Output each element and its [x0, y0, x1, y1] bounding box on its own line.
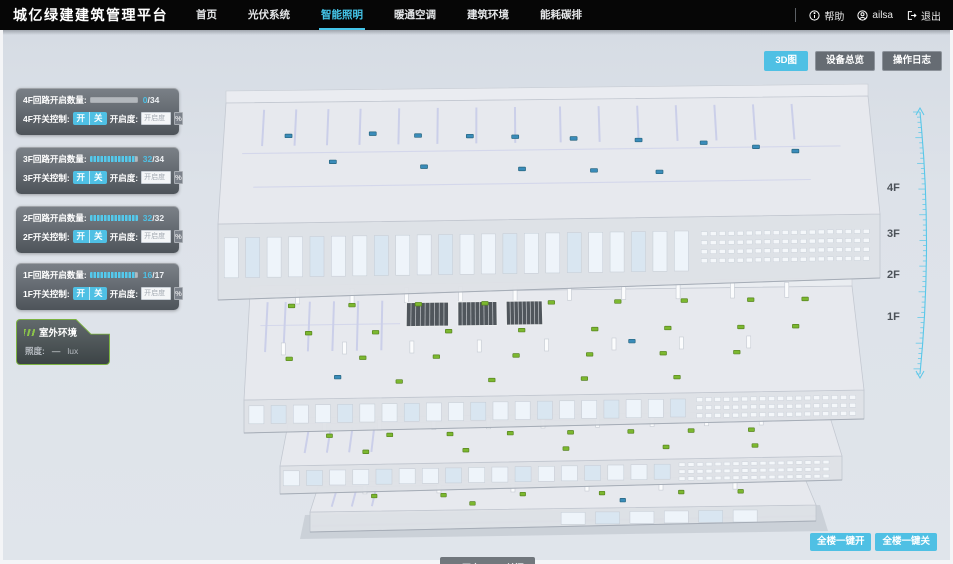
dim-label: 开启度:: [110, 231, 138, 243]
light-marker: [635, 138, 642, 142]
switch-on-button[interactable]: 开: [73, 171, 90, 184]
light-marker: [369, 132, 376, 136]
bulk-buttons: 全楼一键开全楼一键关: [810, 533, 937, 551]
light-marker: [489, 378, 496, 382]
light-marker: [285, 134, 292, 138]
light-marker: [334, 375, 341, 379]
dim-label: 开启度:: [110, 113, 138, 125]
logout-label: 退出: [921, 8, 941, 23]
light-marker: [599, 491, 605, 495]
circuit-count-label: 2F回路开启数量:: [23, 212, 87, 224]
circuit-count-label: 1F回路开启数量:: [23, 269, 87, 281]
light-marker: [548, 301, 555, 305]
light-marker: [656, 170, 663, 174]
light-marker: [513, 354, 520, 358]
light-marker: [371, 494, 377, 498]
light-marker: [792, 324, 799, 328]
light-marker: [570, 137, 577, 141]
light-marker: [563, 447, 569, 451]
logout-icon: [906, 10, 917, 21]
help-icon: [809, 10, 820, 21]
light-marker: [518, 328, 525, 332]
light-marker: [802, 297, 809, 301]
illuminance-unit: lux: [67, 346, 78, 356]
env-stripes-icon: [24, 329, 35, 336]
bulk-button-全楼一键开[interactable]: 全楼一键开: [810, 533, 872, 551]
light-marker: [620, 498, 626, 502]
app-title: 城亿绿建建筑管理平台: [13, 0, 168, 30]
percent-button[interactable]: %: [174, 112, 183, 125]
light-marker: [519, 167, 526, 171]
help-button[interactable]: 帮助: [809, 8, 844, 23]
light-marker: [387, 433, 393, 437]
env-title: 室外环境: [39, 325, 77, 339]
circuit-open-count: 32: [143, 213, 152, 223]
light-marker: [288, 304, 295, 308]
light-marker: [447, 432, 453, 436]
illuminance-value: —: [52, 346, 61, 356]
light-marker: [470, 502, 476, 506]
main-nav: 首页光伏系统智能照明暖通空调建筑环境能耗碳排: [194, 0, 584, 30]
switch-control-label: 2F开关控制:: [23, 231, 70, 243]
light-marker: [748, 428, 754, 432]
circuit-count-label: 4F回路开启数量:: [23, 94, 87, 106]
light-marker: [326, 434, 332, 438]
dim-label: 开启度:: [110, 172, 138, 184]
light-marker: [700, 141, 707, 145]
legend-on-label: 开启: [462, 561, 480, 564]
user-name: ailsa: [872, 10, 893, 21]
view-switch-buttons: 3D图设备总览操作日志: [764, 51, 942, 71]
circuit-open-count: 32: [143, 154, 152, 164]
bulk-button-全楼一键关[interactable]: 全楼一键关: [875, 533, 937, 551]
nav-item-建筑环境[interactable]: 建筑环境: [465, 0, 511, 30]
light-marker: [433, 355, 440, 359]
floor-label-4F[interactable]: 4F: [887, 182, 909, 194]
light-marker: [581, 377, 588, 381]
floor-label-2F[interactable]: 2F: [887, 269, 909, 281]
light-marker: [568, 430, 574, 434]
light-marker: [329, 160, 336, 164]
floor-3d-3F: [244, 278, 864, 433]
floor-label-1F[interactable]: 1F: [887, 311, 909, 323]
switch-off-button[interactable]: 关: [90, 287, 107, 300]
switch-control-label: 3F开关控制:: [23, 172, 70, 184]
light-marker: [615, 300, 622, 304]
view-button-设备总览[interactable]: 设备总览: [815, 51, 875, 71]
topbar: 城亿绿建建筑管理平台 首页光伏系统智能照明暖通空调建筑环境能耗碳排 帮助 ail…: [0, 0, 953, 30]
percent-button[interactable]: %: [174, 287, 183, 300]
light-marker: [752, 145, 759, 149]
app-root: 城亿绿建建筑管理平台 首页光伏系统智能照明暖通空调建筑环境能耗碳排 帮助 ail…: [0, 0, 953, 564]
floor-control-panel-1F: 1F回路开启数量: 16/17 1F开关控制: 开 关 开启度: %: [16, 263, 179, 310]
floor-zoom-ruler[interactable]: [913, 108, 927, 378]
circuit-progress-bar: [90, 215, 138, 221]
light-marker: [445, 329, 452, 333]
percent-button[interactable]: %: [174, 171, 183, 184]
light-marker: [629, 339, 636, 343]
light-marker: [421, 165, 428, 169]
circuit-count-label: 3F回路开启数量:: [23, 153, 87, 165]
switch-off-button[interactable]: 关: [90, 171, 107, 184]
light-marker: [674, 375, 681, 379]
floor-control-panel-2F: 2F回路开启数量: 32/32 2F开关控制: 开 关 开启度: %: [16, 206, 179, 253]
circuit-total: /34: [148, 95, 160, 105]
floor-3d-4F: [218, 84, 880, 300]
switch-on-button[interactable]: 开: [73, 230, 90, 243]
light-marker: [592, 327, 599, 331]
main-canvas: 4F回路开启数量: 0/34 4F开关控制: 开 关 开启度: % 3F回路开启…: [0, 30, 953, 564]
light-marker: [688, 429, 694, 433]
floor-control-panel-4F: 4F回路开启数量: 0/34 4F开关控制: 开 关 开启度: %: [16, 88, 179, 135]
light-marker: [734, 350, 741, 354]
dim-input[interactable]: [141, 287, 171, 300]
light-marker: [747, 298, 754, 302]
light-marker: [305, 331, 312, 335]
illuminance-label: 照度:: [25, 345, 45, 357]
floor-label-3F[interactable]: 3F: [887, 228, 909, 240]
circuit-total: /32: [152, 213, 164, 223]
dim-label: 开启度:: [110, 288, 138, 300]
nav-item-首页[interactable]: 首页: [194, 0, 219, 30]
switch-control-label: 4F开关控制:: [23, 113, 70, 125]
light-marker: [363, 450, 369, 454]
light-marker: [507, 431, 513, 435]
light-marker: [663, 445, 669, 449]
percent-button[interactable]: %: [174, 230, 183, 243]
switch-off-button[interactable]: 关: [90, 112, 107, 125]
light-marker: [415, 302, 422, 306]
user-area: 帮助 ailsa 退出: [795, 0, 953, 30]
switch-control-label: 1F开关控制:: [23, 288, 70, 300]
light-marker: [512, 135, 519, 139]
floor-control-panel-3F: 3F回路开启数量: 32/34 3F开关控制: 开 关 开启度: %: [16, 147, 179, 194]
light-marker: [482, 302, 489, 306]
nav-item-暖通空调[interactable]: 暖通空调: [392, 0, 438, 30]
legend-on: 开启: [451, 561, 480, 564]
nav-item-智能照明[interactable]: 智能照明: [319, 0, 365, 30]
dim-input[interactable]: [141, 230, 171, 243]
switch-off-button[interactable]: 关: [90, 230, 107, 243]
circuit-total: /17: [152, 270, 164, 280]
logout-button[interactable]: 退出: [906, 8, 941, 23]
light-marker: [752, 444, 758, 448]
dim-input[interactable]: [141, 171, 171, 184]
user-avatar-icon: [857, 10, 868, 21]
light-marker: [738, 489, 744, 493]
divider: [795, 8, 796, 22]
light-marker: [415, 134, 422, 138]
dim-input[interactable]: [141, 112, 171, 125]
light-marker: [396, 380, 403, 384]
nav-item-能耗碳排[interactable]: 能耗碳排: [538, 0, 584, 30]
circuit-progress-bar: [90, 156, 138, 162]
light-marker: [590, 169, 597, 173]
light-marker: [360, 356, 367, 360]
light-marker: [738, 325, 745, 329]
legend-off: 关闭: [495, 561, 524, 564]
light-marker: [466, 134, 473, 138]
legend-off-label: 关闭: [506, 561, 524, 564]
switch-on-button[interactable]: 开: [73, 112, 90, 125]
light-marker: [660, 351, 667, 355]
light-marker: [586, 353, 593, 357]
circuit-progress-bar: [90, 272, 138, 278]
help-label: 帮助: [824, 8, 844, 23]
light-marker: [463, 448, 469, 452]
light-marker: [792, 149, 799, 153]
circuit-total: /34: [152, 154, 164, 164]
view-button-3D图[interactable]: 3D图: [764, 51, 808, 71]
light-marker: [441, 493, 447, 497]
switch-on-button[interactable]: 开: [73, 287, 90, 300]
circuit-open-count: 16: [143, 270, 152, 280]
view-button-操作日志[interactable]: 操作日志: [882, 51, 942, 71]
light-marker: [520, 492, 526, 496]
light-marker: [349, 303, 356, 307]
user-menu[interactable]: ailsa: [857, 10, 893, 21]
light-marker: [372, 330, 379, 334]
legend: 开启 关闭: [440, 557, 535, 564]
light-marker: [286, 357, 293, 361]
light-marker: [665, 326, 672, 330]
light-marker: [681, 299, 688, 303]
light-marker: [678, 490, 684, 494]
nav-item-光伏系统[interactable]: 光伏系统: [246, 0, 292, 30]
circuit-progress-bar: [90, 97, 138, 103]
light-marker: [628, 430, 634, 434]
